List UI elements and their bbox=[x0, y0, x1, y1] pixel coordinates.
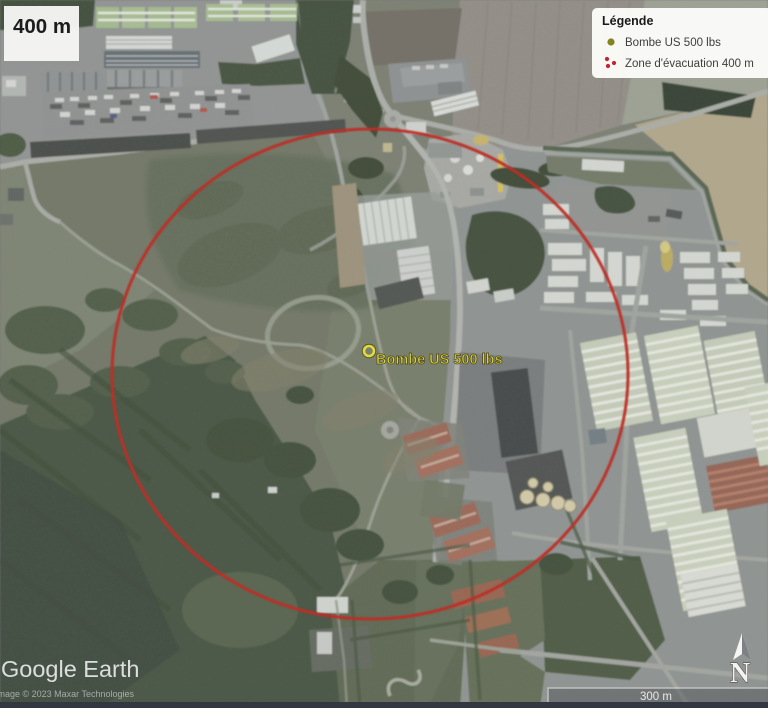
svg-text:N: N bbox=[730, 658, 750, 689]
svg-text:Bombe US 500 lbs: Bombe US 500 lbs bbox=[625, 37, 721, 49]
svg-text:Zone d'évacuation 400 m: Zone d'évacuation 400 m bbox=[625, 58, 754, 70]
svg-text:Google Earth: Google Earth bbox=[1, 656, 139, 682]
svg-text:300 m: 300 m bbox=[640, 691, 672, 703]
svg-text:Image © 2023 Maxar Technologie: Image © 2023 Maxar Technologies bbox=[0, 689, 135, 699]
svg-text:Légende: Légende bbox=[602, 14, 653, 28]
svg-text:400 m: 400 m bbox=[13, 15, 71, 38]
svg-text:Bombe US 500 lbs: Bombe US 500 lbs bbox=[376, 352, 503, 368]
